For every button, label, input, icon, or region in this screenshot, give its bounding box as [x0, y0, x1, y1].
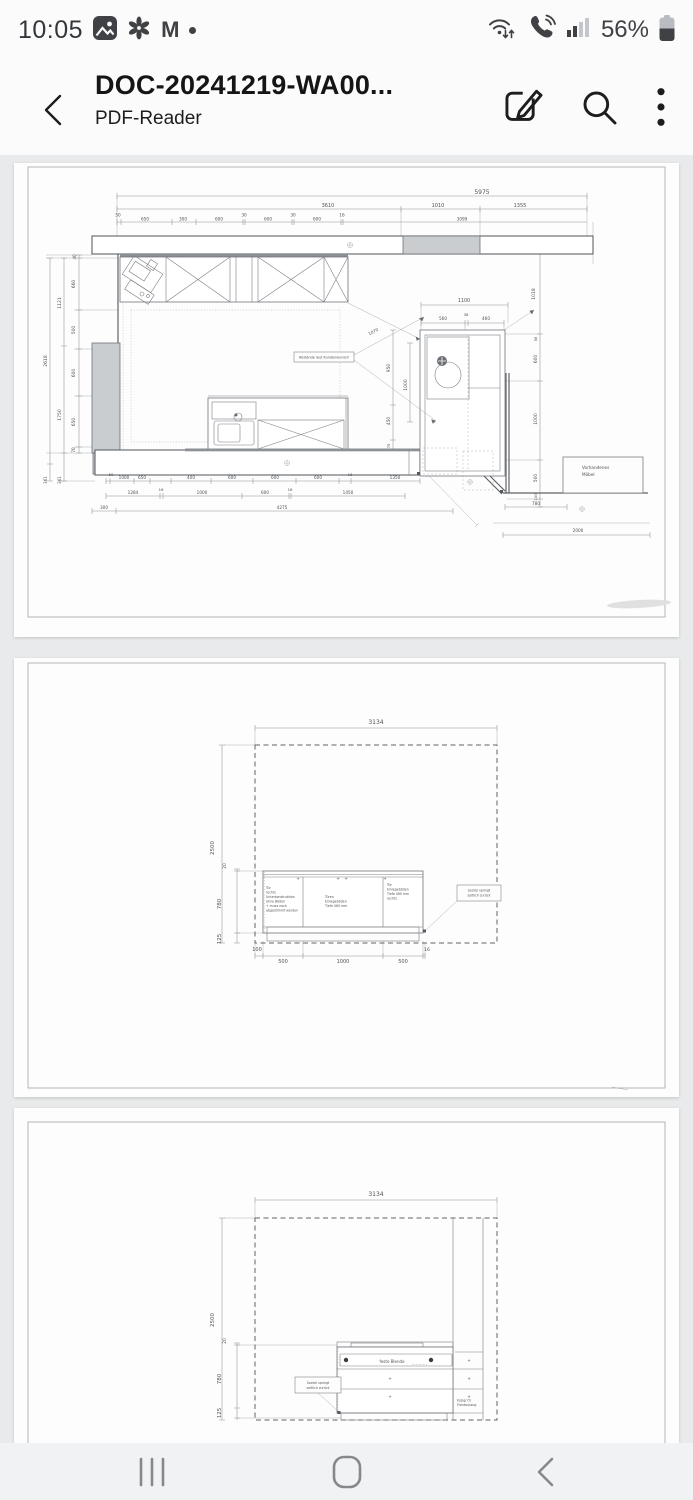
pdf-page-1[interactable]: 5975361010101355506503006003060030600163… — [14, 163, 679, 637]
base-cabinet-elevation — [337, 1342, 483, 1420]
battery-icon — [659, 14, 675, 47]
drawing-frame — [28, 167, 665, 617]
drawing-label: 600 — [215, 217, 223, 222]
drawing-label: 780 — [532, 501, 540, 506]
drawing-label: Vorhandenes — [582, 465, 609, 470]
drawing-label: + — [296, 876, 299, 881]
scan-smudge — [607, 598, 671, 609]
drawing-label: 1355 — [514, 203, 527, 209]
notification-dot — [189, 27, 196, 34]
more-icon — [653, 84, 669, 130]
home-icon — [332, 1454, 362, 1490]
drawing-label: + muss noch — [266, 904, 287, 908]
drawing-label: Tür — [386, 883, 393, 887]
drawing-label: 950 — [386, 364, 392, 373]
drawing-label: 1010 — [432, 203, 445, 209]
drawing-label: 2000 — [573, 528, 584, 533]
drawing-label: 600 — [228, 475, 236, 480]
drawing-label: 50 — [115, 213, 121, 218]
drawing-label: 400 — [187, 475, 195, 480]
drawing-label: 600 — [314, 475, 322, 480]
drawing-label: 20 — [222, 863, 228, 869]
flower-icon — [127, 16, 151, 45]
drawing-label: 3610 — [322, 203, 335, 209]
drawing-label: 3099 — [457, 217, 468, 222]
drawing-label: 100 — [533, 493, 538, 501]
drawing-label: 600 — [264, 217, 272, 222]
drawing-label: abgestimmt werden — [266, 909, 298, 913]
drawing-label: + — [344, 876, 347, 881]
search-button[interactable] — [579, 85, 619, 134]
drawing-label: Frontauszug — [457, 1403, 476, 1407]
drawing-label: 125 — [217, 933, 223, 944]
recents-icon — [132, 1455, 172, 1489]
drawing-label: + — [467, 1376, 470, 1381]
existing-furniture-box — [563, 457, 643, 493]
drawing-label: 1000 — [119, 475, 130, 480]
tall-unit — [420, 330, 505, 490]
drawing-label: 1000 — [197, 490, 208, 495]
drawing-label: 300 — [100, 505, 108, 510]
drawing-label: seitlich zurück — [307, 1386, 330, 1390]
drawing-label: 2618 — [43, 355, 49, 367]
drawing-label: 5975 — [474, 189, 489, 196]
knob — [344, 1358, 348, 1362]
drawing-label: 16 — [424, 947, 430, 953]
signal-strength-icon — [567, 15, 591, 46]
drawing-label: feste Blende — [379, 1359, 405, 1364]
drawing-label: 450 — [386, 417, 392, 426]
drawing-label: ohne Böden — [266, 900, 285, 904]
drawing-label: 75 — [386, 443, 391, 448]
drawing-label: + — [467, 1358, 470, 1363]
drawing-label: 50 — [109, 472, 114, 477]
wifi-calling-icon — [527, 13, 557, 48]
drawing-label: Möbel — [582, 472, 595, 477]
back-chevron-icon — [38, 88, 72, 132]
drawing-label: 600 — [271, 475, 279, 480]
nav-back-button[interactable] — [505, 1443, 585, 1500]
drawing-label: 1350 — [390, 475, 401, 480]
pdf-page-3[interactable]: 3134250020780125feste Blende+++++Essig/ … — [14, 1108, 679, 1443]
drawing-label: 650 — [71, 418, 77, 427]
app-bar: DOC-20241219-WA00... PDF-Reader — [0, 60, 693, 155]
more-button[interactable] — [653, 84, 669, 135]
drawing-label: 2500 — [210, 841, 216, 855]
drawing-label: + — [383, 876, 386, 881]
drawing-label: 650 — [138, 475, 146, 480]
drawing-label: 650 — [141, 217, 149, 222]
drawing-label: Tür — [265, 886, 272, 890]
drawing-label: 1000 — [337, 959, 350, 965]
drawing-label: 125 — [217, 1407, 223, 1418]
drawing-label: Einlegeböden — [387, 888, 409, 892]
gmail-icon: M — [161, 19, 179, 41]
drawing-label: 460 — [482, 316, 490, 321]
drawing-label: 600 — [533, 355, 539, 364]
drawing-label: 30 — [241, 213, 247, 218]
drawing-label: 1000 — [533, 413, 539, 425]
edit-icon — [503, 84, 545, 130]
drawing-label: Tiefe 460 mm — [386, 892, 409, 896]
drawing-label: Einlegeböden — [325, 900, 347, 904]
recents-button[interactable] — [112, 1443, 192, 1500]
drawing-label: 500 — [71, 326, 77, 335]
app-name: PDF-Reader — [95, 108, 465, 130]
annotation-leaders — [423, 885, 628, 1090]
drawing-label: 1018 — [531, 288, 537, 300]
drawing-label: 361 — [43, 476, 48, 484]
drawing-label: 500 — [278, 959, 288, 965]
drawing-label: seitlich zurück — [468, 894, 491, 898]
drawing-label: Tiefe 460 mm — [324, 904, 347, 908]
drawing-label: 30 — [290, 213, 296, 218]
drawing-label: 600 — [71, 369, 77, 378]
drawing-label: 361 — [57, 476, 62, 484]
drawing-label: 1284 — [128, 490, 139, 495]
drawing-label: 1450 — [343, 490, 354, 495]
drawing-label: 56 — [533, 336, 538, 341]
search-icon — [579, 85, 619, 129]
drawing-label: 16 — [348, 472, 353, 477]
gallery-icon — [93, 16, 117, 45]
drawing-label: + — [388, 1394, 391, 1399]
drawing-label: 16 — [339, 213, 345, 218]
drawing-label: 560 — [439, 316, 447, 321]
document-title: DOC-20241219-WA00... — [95, 70, 465, 101]
pdf-page-2[interactable]: 3134250020780125100500100050016++++Türre… — [14, 658, 679, 1097]
drawing-label: 1070 — [367, 327, 379, 337]
clock: 10:05 — [18, 16, 83, 45]
home-button[interactable] — [307, 1443, 387, 1500]
drawing-label: 1750 — [57, 409, 63, 421]
drawing-label: 2500 — [210, 1313, 216, 1327]
nav-back-icon — [532, 1454, 558, 1490]
drawing-label: 1000 — [403, 379, 409, 391]
drawing-label: Essig/ Öl — [457, 1398, 471, 1403]
note-box — [295, 1377, 341, 1393]
drawing-label: 600 — [261, 490, 269, 495]
drawing-label: 300 — [179, 217, 187, 222]
drawing-label: + — [388, 1376, 391, 1381]
window-hatch — [403, 236, 480, 254]
drawing-label: 3134 — [368, 719, 383, 726]
drawing-label: 600 — [313, 217, 321, 222]
drawing-label: 1100 — [458, 298, 470, 304]
drawing-label: 100 — [252, 947, 262, 953]
tall-column — [453, 1218, 483, 1420]
drawing-label: rechts — [266, 891, 276, 895]
drawing-label: Unterkonstruktion — [266, 895, 295, 899]
drawing-label: 660 — [71, 280, 77, 289]
base-counter — [95, 449, 420, 476]
back-button[interactable] — [38, 88, 72, 132]
drawing-label: 780 — [217, 1373, 223, 1384]
drawing-label: + — [336, 876, 339, 881]
drawing-label: 780 — [217, 898, 223, 909]
status-bar: 10:05 M — [0, 0, 693, 60]
drawing-label: 500 — [533, 474, 539, 483]
drawing-label: 16 — [288, 487, 293, 492]
edit-button[interactable] — [503, 84, 545, 135]
navigation-bar — [0, 1443, 693, 1500]
battery-percent: 56% — [601, 16, 649, 44]
drawing-label: 16 — [159, 487, 164, 492]
island-unit — [208, 396, 348, 450]
drawing-label: 38 — [464, 312, 469, 317]
drawing-label: 20 — [222, 1338, 228, 1344]
drawing-label: 3134 — [368, 1191, 383, 1198]
drawing-label: Sockel springt — [468, 889, 491, 893]
knob — [429, 1358, 433, 1362]
drawing-label: 4275 — [277, 505, 288, 510]
wifi-arrows-icon — [487, 13, 517, 48]
drawing-label: rechts — [387, 897, 397, 901]
drawing-label: 70 — [71, 447, 76, 453]
drawing-label: Abstände laut Kundenwunsch — [299, 356, 349, 360]
left-wall-block — [92, 343, 120, 453]
drawing-label: Sockel springt — [307, 1381, 330, 1385]
drawing-label: 500 — [398, 959, 408, 965]
drawing-label: 40 — [72, 254, 77, 260]
drawing-label: 1121 — [57, 297, 63, 309]
drawing-label: Türen — [324, 895, 334, 899]
